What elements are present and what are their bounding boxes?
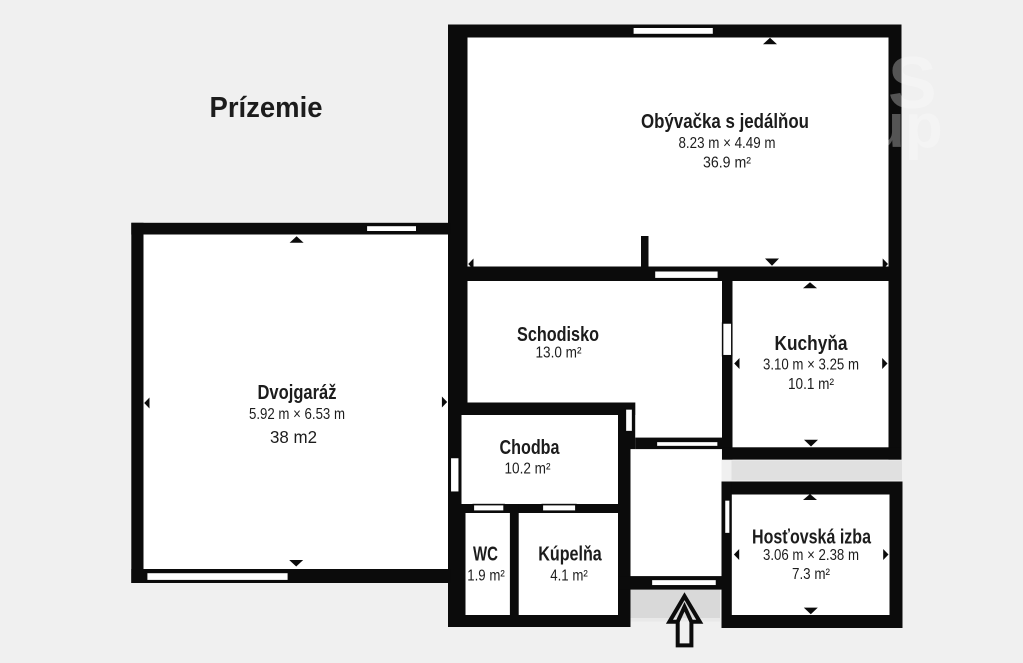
svg-text:10.1 m²: 10.1 m² [788,376,834,393]
svg-text:Prízemie: Prízemie [210,92,323,124]
svg-text:8.23 m × 4.49 m: 8.23 m × 4.49 m [679,135,776,152]
svg-text:up: up [867,92,943,161]
svg-text:Kuchyňa: Kuchyňa [775,333,849,355]
svg-text:13.0 m²: 13.0 m² [536,345,582,362]
svg-text:38 m2: 38 m2 [270,427,317,447]
svg-text:Schodisko: Schodisko [517,324,599,346]
svg-text:4.1 m²: 4.1 m² [550,568,588,585]
svg-text:10.2 m²: 10.2 m² [505,461,551,478]
svg-text:Chodba: Chodba [500,437,561,459]
svg-text:36.9 m²: 36.9 m² [703,155,751,172]
svg-text:7.3 m²: 7.3 m² [792,566,830,583]
svg-text:3.10 m × 3.25 m: 3.10 m × 3.25 m [763,357,859,374]
svg-text:3.06 m × 2.38 m: 3.06 m × 2.38 m [763,547,859,564]
svg-text:Kúpelňa: Kúpelňa [538,544,602,566]
svg-text:WC: WC [473,544,498,566]
svg-text:Hosťovská izba: Hosťovská izba [752,527,872,549]
svg-text:5.92 m × 6.53 m: 5.92 m × 6.53 m [249,406,345,423]
svg-text:Dvojgaráž: Dvojgaráž [258,382,337,404]
svg-text:Obývačka s jedálňou: Obývačka s jedálňou [641,111,809,133]
svg-text:1.9 m²: 1.9 m² [467,568,505,585]
